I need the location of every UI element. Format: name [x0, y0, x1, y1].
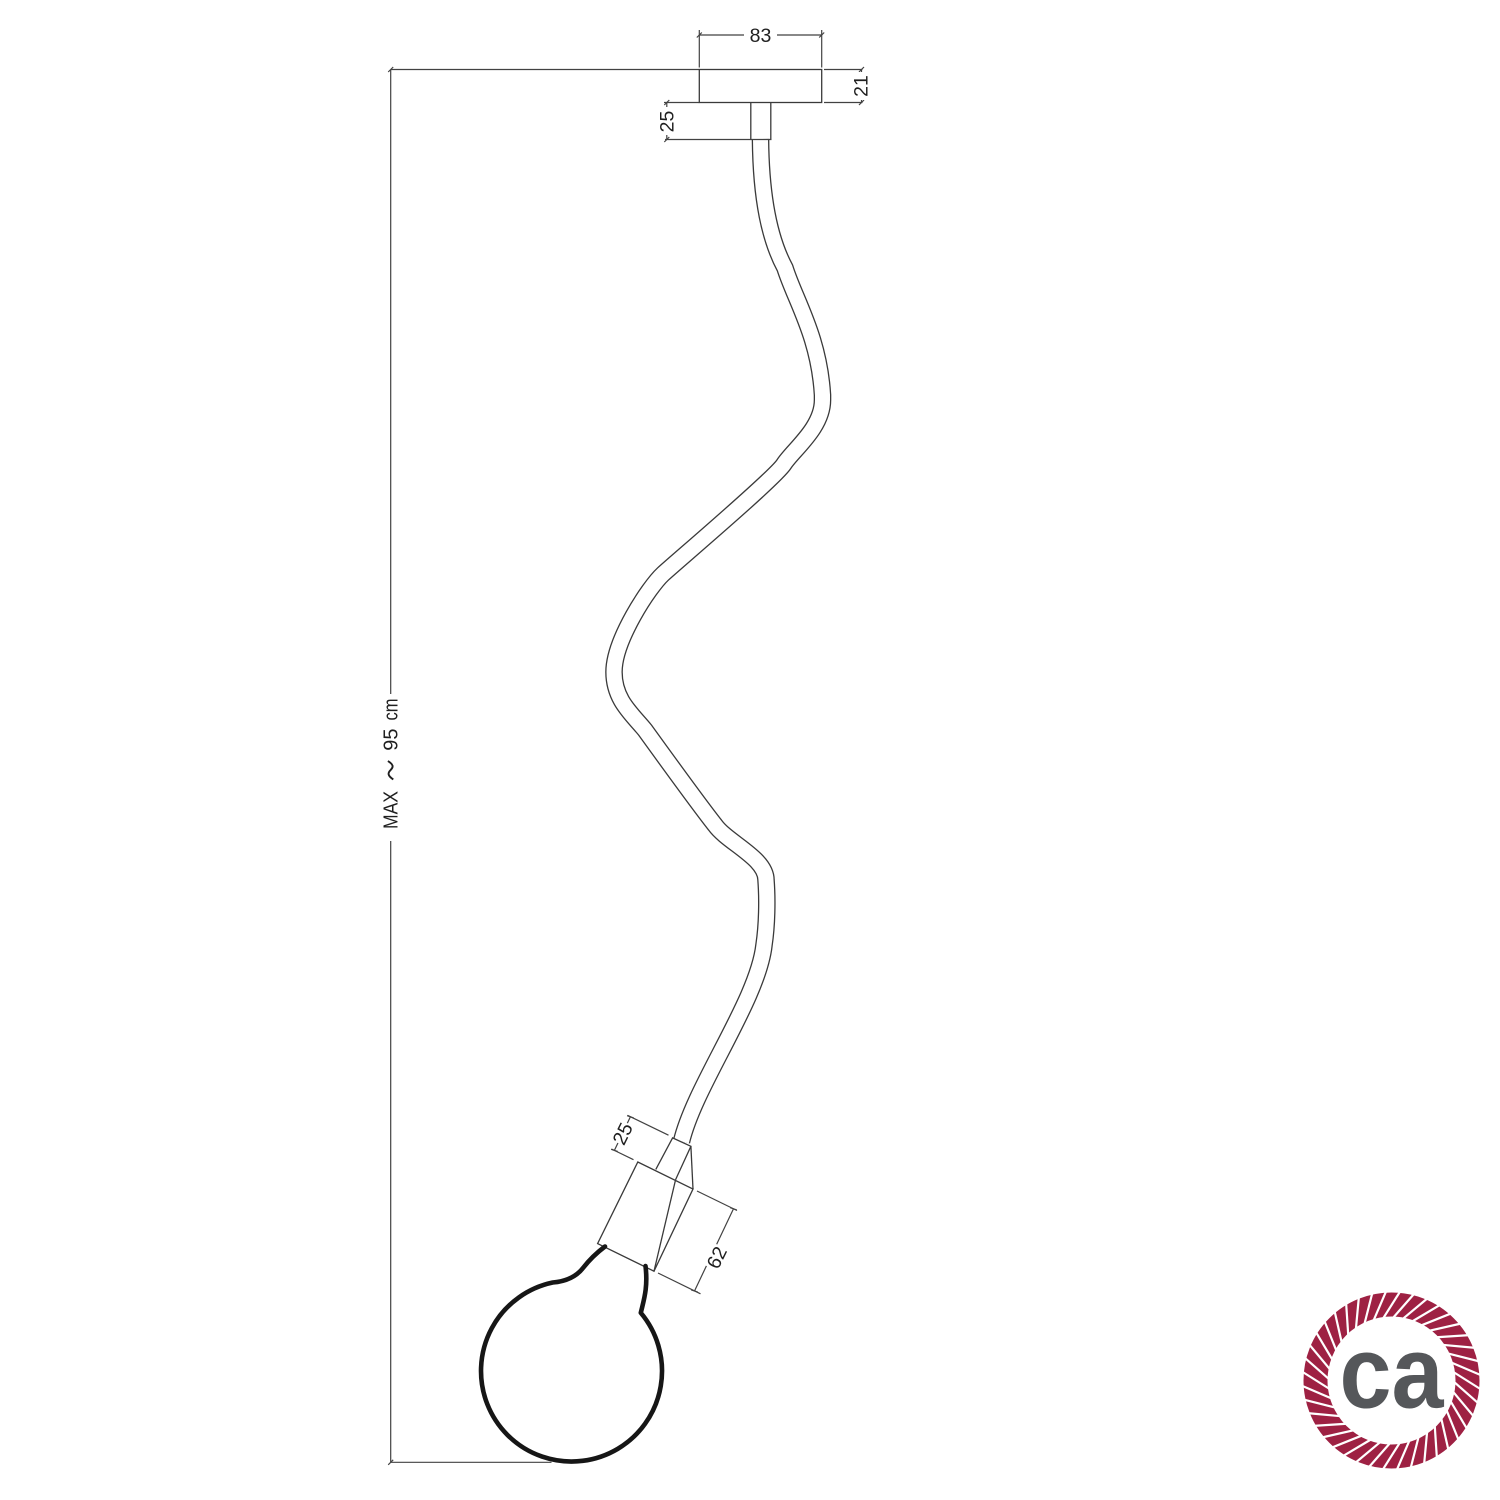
svg-text:21: 21	[851, 75, 873, 97]
svg-text:83: 83	[750, 25, 772, 47]
svg-text:cm: cm	[381, 699, 403, 721]
svg-text:ca: ca	[1340, 1316, 1445, 1430]
svg-text:25: 25	[657, 111, 679, 133]
svg-text:95: 95	[381, 728, 403, 750]
svg-text:MAX: MAX	[381, 791, 403, 829]
